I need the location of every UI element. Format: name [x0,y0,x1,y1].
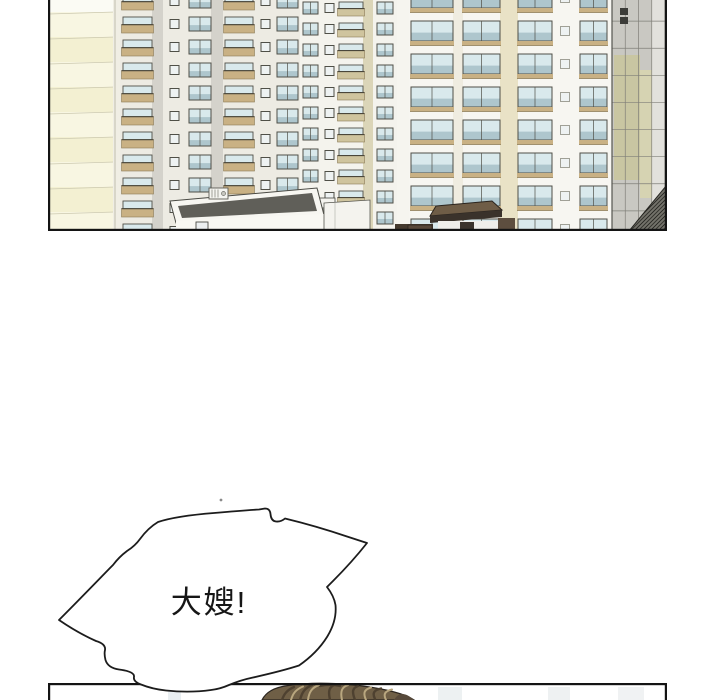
wall-edge-strip [113,0,120,232]
cream-band [49,187,115,212]
small-window [170,20,179,29]
small-window [170,112,179,121]
balcony-glass [123,17,152,25]
balcony-glass [225,178,253,186]
window-sill [517,140,553,145]
small-window [261,89,270,98]
window-sill [517,74,553,79]
small-window [170,181,179,190]
window-sill [462,74,501,79]
balcony-glass [339,107,363,114]
balcony-glass [339,23,363,30]
small-window [261,135,270,144]
balcony-rail [338,177,365,184]
comic-page: 大嫂! [0,0,720,700]
white-wing-wall [324,200,370,231]
comic-page-scene: 大嫂! [0,0,720,700]
balcony-glass [225,86,253,94]
balcony-glass [339,86,363,93]
balcony-rail [224,2,255,10]
balcony-rail [338,72,365,79]
building-logo-mark [620,8,628,15]
small-window [261,0,270,6]
small-window [561,126,570,135]
cream-band [49,137,115,162]
balcony-glass [225,63,253,71]
balcony-rail [122,71,154,79]
window-sill [579,41,608,46]
cream-band [49,12,115,37]
city-panel-border-left [48,0,50,231]
bottom-panel-border-left [48,683,50,700]
balcony-rail [224,71,255,79]
city-illustration [49,0,720,244]
small-window [325,88,334,97]
small-window [170,66,179,75]
balcony-glass [123,178,152,186]
balcony-glass [225,40,253,48]
balcony-glass [123,155,152,163]
faint-background-shape [438,687,462,700]
balcony-rail [122,209,154,217]
balcony-glass [123,40,152,48]
balcony-rail [122,2,154,10]
window-sill [579,140,608,145]
faint-background-shape [548,687,570,700]
small-window [561,60,570,69]
window-sill [410,8,454,13]
cream-band [49,87,115,112]
balcony-glass [339,65,363,72]
grid-building-olive-band-2 [640,70,652,198]
balcony-rail [338,114,365,121]
cream-band [49,112,115,137]
balcony-rail [338,51,365,58]
small-window [561,93,570,102]
window-sill [579,74,608,79]
small-window [170,135,179,144]
balcony-glass [225,109,253,117]
small-window [170,43,179,52]
balcony-glass [339,2,363,9]
cream-band [49,62,115,87]
building-logo-mark [620,17,628,24]
ac-fan [222,192,226,196]
balcony-rail [338,93,365,100]
cream-band [49,37,115,62]
grid-building-olive-band [614,55,640,180]
balcony-rail [224,140,255,148]
bubble-text: 大嫂! [171,585,248,620]
balcony-glass [339,128,363,135]
small-window [561,159,570,168]
small-window [261,43,270,52]
balcony-rail [338,135,365,142]
balcony-rail [122,186,154,194]
small-window [325,130,334,139]
small-window [261,20,270,29]
window-sill [410,41,454,46]
balcony-glass [225,155,253,163]
small-window [170,0,179,6]
balcony-glass [339,44,363,51]
balcony-rail [224,163,255,171]
balcony-glass [339,170,363,177]
small-window [561,0,570,3]
city-art [49,0,720,244]
balcony-rail [224,117,255,125]
balcony-rail [338,9,365,16]
small-window [561,27,570,36]
balcony-glass [225,17,253,25]
window-sill [462,173,501,178]
small-window [170,89,179,98]
window-sill [410,173,454,178]
balcony-glass [123,132,152,140]
balcony-rail [122,48,154,56]
balcony-rail [122,117,154,125]
faint-background-shape [618,687,644,700]
window-sill [517,41,553,46]
balcony-glass [123,86,152,94]
balcony-rail [122,163,154,171]
window-sill [579,173,608,178]
small-window [325,46,334,55]
window-sill [462,41,501,46]
ink-speck [220,499,223,502]
balcony-glass [123,63,152,71]
city-panel-border-bottom [48,229,667,231]
small-window [325,67,334,76]
balcony-glass [123,109,152,117]
window-sill [410,140,454,145]
balcony-rail [122,94,154,102]
balcony-rail [224,94,255,102]
small-window [325,4,334,13]
small-window [325,172,334,181]
cream-band [49,162,115,187]
city-panel-border-right [665,0,667,231]
balcony-rail [122,140,154,148]
window-sill [517,206,553,211]
balcony-rail [224,48,255,56]
wall-strip [500,0,518,240]
balcony-glass [339,191,363,198]
balcony-rail [338,30,365,37]
bottom-panel-border-right [665,683,667,700]
balcony-rail [338,156,365,163]
window-sill [517,173,553,178]
small-window [261,66,270,75]
window-sill [462,107,501,112]
small-window [325,25,334,34]
balcony-glass [123,201,152,209]
balcony-glass [225,132,253,140]
window-sill [579,8,608,13]
window-sill [410,107,454,112]
window-sill [410,74,454,79]
small-window [561,192,570,201]
balcony-rail [122,25,154,33]
window-sill [579,107,608,112]
small-window [261,158,270,167]
small-window [261,112,270,121]
window-sill [517,8,553,13]
small-window [170,158,179,167]
window-sill [462,140,501,145]
small-window [325,151,334,160]
window-sill [579,206,608,211]
window-sill [462,8,501,13]
small-window [261,181,270,190]
balcony-glass [339,149,363,156]
balcony-rail [224,25,255,33]
small-window [325,109,334,118]
window-sill [517,107,553,112]
